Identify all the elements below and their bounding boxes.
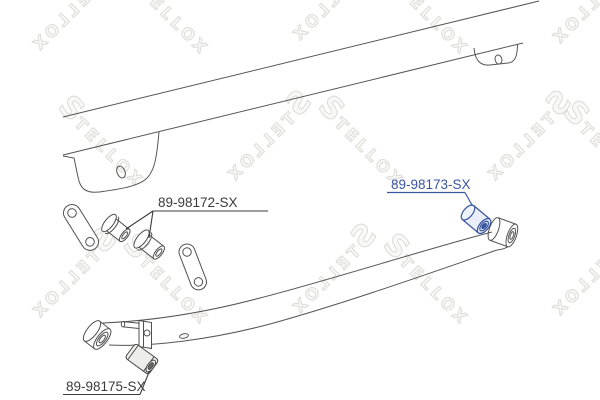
part-number-text[interactable]: 89-98173-SX [391,177,471,192]
frame-rail-bottom-edge [63,43,523,155]
link-plate [60,201,101,253]
label-front-spring-eye-bushing[interactable]: 89-98175-SX [63,371,150,395]
eye-face [504,223,521,249]
center-bolt-detail [179,333,189,339]
bushing-end-face [151,244,166,261]
link-plate [177,242,209,293]
frame-rail [63,1,539,192]
bushing-flange [131,228,152,251]
bushing-flange [99,212,119,234]
part-number-text[interactable]: 89-98175-SX [66,379,146,394]
label-rear-spring-eye-bushing[interactable]: 89-98173-SX [387,177,473,206]
front-hanger-bracket-hole [115,165,127,179]
spring-bottom-edge [109,250,497,345]
bushing-end-face [118,227,132,243]
part-labels: 89-98172-SX 89-98173-SX 89-98175-SX [63,177,473,395]
rear-bracket-hole [494,54,503,64]
front-eye-bushing-part [125,343,159,375]
suspension-line-drawing: 89-98172-SX 89-98173-SX 89-98175-SX [0,0,600,400]
part-number-text[interactable]: 89-98172-SX [158,195,238,210]
shackle-link-right [177,242,209,293]
label-leader-line [465,193,473,207]
parts-diagram-canvas: STELLOX STELLOX STELLOX STELLOX STELLOX … [0,0,600,400]
front-hanger-bracket [63,132,159,192]
highlighted-rear-bushing [459,203,494,236]
bushing-barrel [125,343,159,375]
frame-rail-top-edge [63,1,539,117]
hanger-pin-end [121,322,124,327]
hanger-plate-hole [144,330,150,336]
shackle-link-left [60,201,101,253]
shackle-bushing-1 [99,212,134,245]
